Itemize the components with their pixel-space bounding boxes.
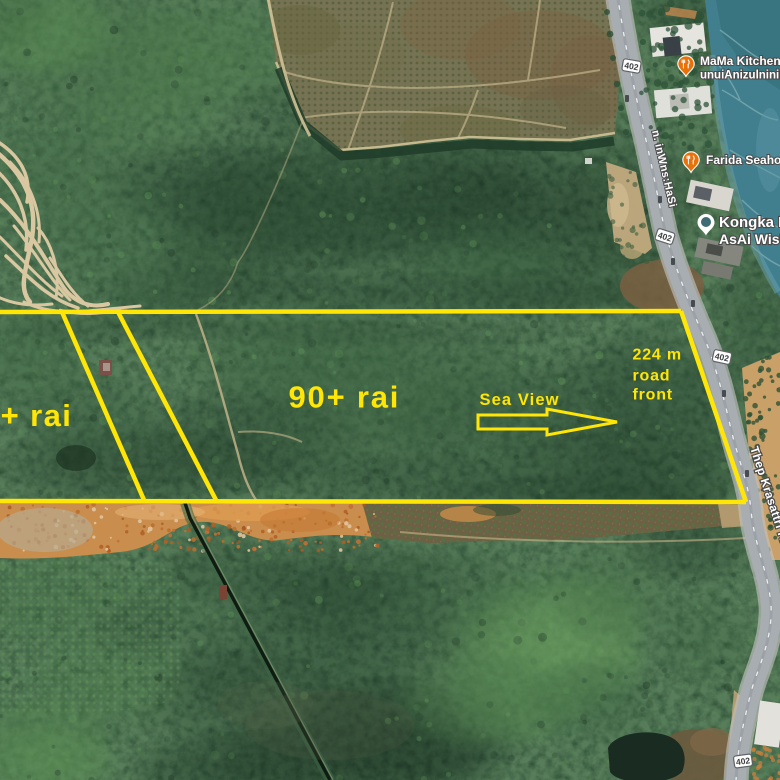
svg-text:90+ rai: 90+ rai [289,380,401,415]
svg-text:MaMa Kitchen: MaMa Kitchen [700,54,780,68]
svg-text:unuiAnizulninin: unuiAnizulninin [700,70,780,82]
svg-text:front: front [633,387,673,404]
svg-text:402: 402 [735,755,751,767]
svg-text:224 m: 224 m [633,347,682,364]
svg-text:AsAi WisU: AsAi WisU [719,231,780,247]
svg-text:road: road [633,368,671,385]
svg-text:0+ rai: 0+ rai [0,398,72,433]
svg-text:Kongka Far: Kongka Far [719,214,780,231]
svg-text:Sea View: Sea View [480,391,560,409]
svg-text:Farida Seahou: Farida Seahou [706,153,780,167]
